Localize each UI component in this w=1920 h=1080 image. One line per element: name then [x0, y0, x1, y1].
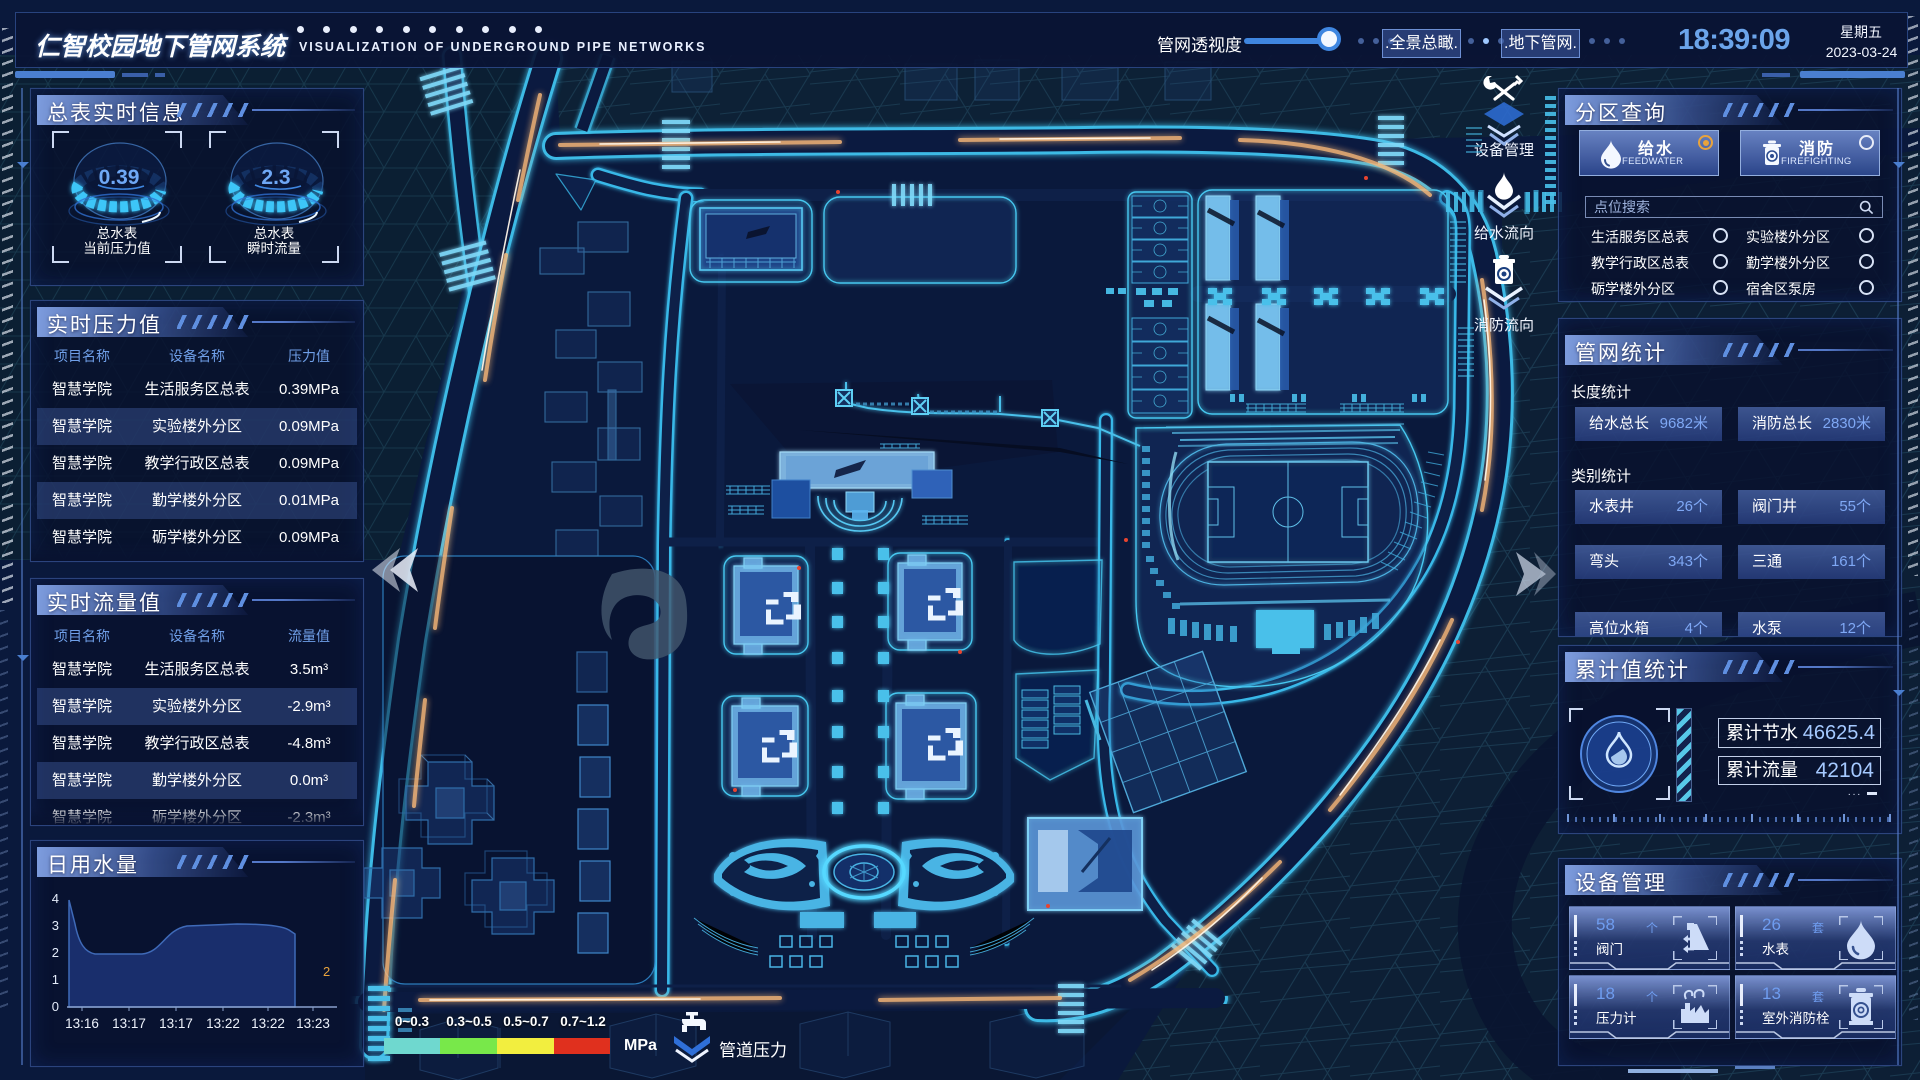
svg-text:13:23: 13:23 — [296, 1016, 330, 1031]
svg-text:2: 2 — [52, 945, 59, 960]
svg-text:2.3: 2.3 — [261, 166, 290, 189]
svg-text:13:17: 13:17 — [112, 1016, 146, 1031]
svg-text:4: 4 — [52, 891, 59, 906]
svg-text:13:22: 13:22 — [251, 1016, 285, 1031]
svg-text:0: 0 — [52, 999, 59, 1014]
svg-text:0.39: 0.39 — [99, 166, 140, 189]
svg-text:13:17: 13:17 — [159, 1016, 193, 1031]
svg-text:消防流向: 消防流向 — [1474, 317, 1534, 334]
svg-text:给水流向: 给水流向 — [1474, 225, 1534, 242]
svg-text:13:16: 13:16 — [65, 1016, 99, 1031]
svg-text:13:22: 13:22 — [206, 1016, 240, 1031]
svg-text:2: 2 — [323, 964, 330, 979]
svg-text:3: 3 — [52, 918, 59, 933]
svg-text:1: 1 — [52, 972, 59, 987]
svg-text:设备管理: 设备管理 — [1474, 142, 1534, 159]
